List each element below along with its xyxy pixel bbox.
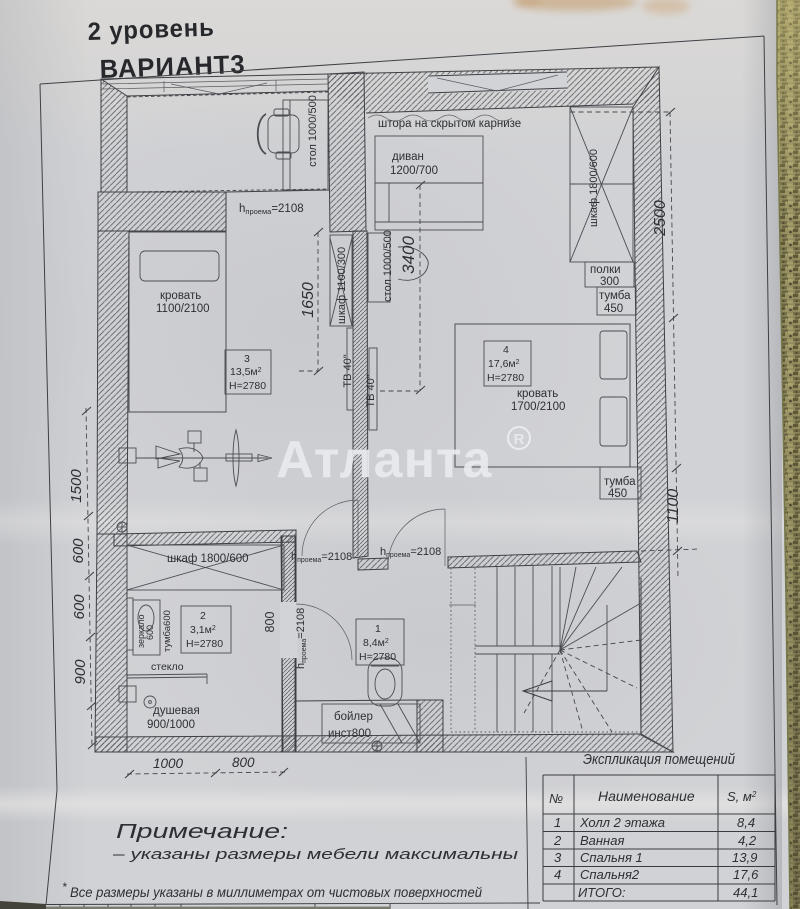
svg-text:кровать: кровать [160, 290, 201, 302]
svg-text:2500: 2500 [652, 200, 669, 237]
svg-text:стекло: стекло [151, 661, 184, 673]
svg-text:4: 4 [503, 344, 509, 356]
svg-text:тумба: тумба [599, 290, 631, 302]
svg-text:2: 2 [200, 610, 206, 622]
svg-text:1: 1 [375, 623, 381, 635]
svg-text:шкаф 1800/600: шкаф 1800/600 [167, 553, 249, 565]
svg-text:2 уровень: 2 уровень [87, 14, 215, 46]
svg-text:диван: диван [392, 151, 424, 163]
svg-text:900/1000: 900/1000 [147, 719, 195, 731]
svg-text:8,4: 8,4 [737, 815, 755, 830]
svg-text:тумба: тумба [604, 476, 636, 488]
svg-text:1000: 1000 [153, 756, 184, 771]
svg-text:600: 600 [71, 594, 88, 620]
svg-text:4,2: 4,2 [738, 833, 757, 848]
svg-text:1: 1 [554, 815, 561, 830]
svg-text:бойлер: бойлер [334, 711, 373, 723]
svg-text:3: 3 [554, 850, 562, 865]
svg-text:полки: полки [590, 264, 621, 276]
svg-text:17,6м2: 17,6м2 [488, 358, 520, 370]
svg-text:душевая: душевая [153, 705, 200, 717]
svg-text:3400: 3400 [399, 236, 418, 274]
svg-text:800: 800 [263, 612, 277, 633]
svg-text:Н=2780: Н=2780 [359, 651, 396, 663]
svg-text:1650: 1650 [300, 282, 317, 318]
svg-text:4: 4 [554, 867, 561, 882]
svg-text:Экспликация помещений: Экспликация помещений [583, 752, 735, 768]
svg-text:600: 600 [70, 538, 87, 564]
svg-text:2: 2 [553, 833, 562, 848]
svg-text:17,6: 17,6 [733, 867, 759, 882]
svg-text:ИТОГО:: ИТОГО: [578, 885, 626, 900]
svg-text:450: 450 [608, 488, 627, 500]
svg-text:стол 1000/500: стол 1000/500 [382, 230, 394, 302]
svg-text:стол 1000/500: стол 1000/500 [307, 95, 319, 167]
svg-text:– указаны размеры мебели макси: – указаны размеры мебели максимальны [112, 847, 519, 863]
svg-text:тумба600: тумба600 [162, 610, 173, 652]
svg-text:1200/700: 1200/700 [390, 165, 438, 177]
svg-text:1700/2100: 1700/2100 [511, 401, 565, 413]
svg-text:№: № [549, 791, 563, 806]
svg-text:R: R [514, 431, 525, 448]
svg-text:Спальня 1: Спальня 1 [580, 850, 643, 865]
svg-text:Атланта: Атланта [276, 431, 492, 489]
svg-text:инст800: инст800 [328, 728, 371, 740]
svg-text:13,9: 13,9 [732, 850, 757, 865]
svg-text:1100/2100: 1100/2100 [156, 303, 210, 315]
svg-text:Ванная: Ванная [580, 833, 624, 848]
svg-text:1500: 1500 [68, 469, 85, 503]
svg-text:Спальня2: Спальня2 [580, 867, 640, 882]
svg-text:1100: 1100 [665, 489, 682, 524]
svg-text:600: 600 [145, 625, 155, 640]
svg-text:Наименование: Наименование [598, 788, 695, 804]
svg-text:Примечание:: Примечание: [116, 821, 288, 843]
svg-text:Н=2780: Н=2780 [229, 380, 266, 392]
svg-text:*: * [62, 880, 67, 894]
svg-text:Холл 2 этажа: Холл 2 этажа [579, 815, 665, 830]
svg-text:Н=2780: Н=2780 [487, 372, 524, 384]
svg-text:кровать: кровать [517, 388, 558, 400]
svg-text:13,5м2: 13,5м2 [230, 366, 262, 378]
svg-text:Все размеры указаны в миллиме: Все размеры указаны в миллиметрах от чис… [70, 884, 482, 900]
svg-text:штора на скрытом карнизе: штора на скрытом карнизе [378, 118, 521, 130]
svg-text:800: 800 [232, 755, 255, 770]
svg-text:44,1: 44,1 [733, 885, 758, 900]
svg-text:900: 900 [72, 659, 89, 685]
svg-text:шкаф 1800/600: шкаф 1800/600 [588, 149, 600, 227]
svg-text:ТВ 40": ТВ 40" [342, 354, 354, 387]
svg-text:Н=2780: Н=2780 [186, 638, 223, 650]
svg-text:300: 300 [600, 276, 619, 288]
svg-text:шкаф 1100/300: шкаф 1100/300 [336, 247, 348, 324]
svg-text:3: 3 [244, 353, 250, 365]
svg-text:ТВ 40": ТВ 40" [365, 374, 377, 407]
svg-text:450: 450 [604, 303, 623, 315]
